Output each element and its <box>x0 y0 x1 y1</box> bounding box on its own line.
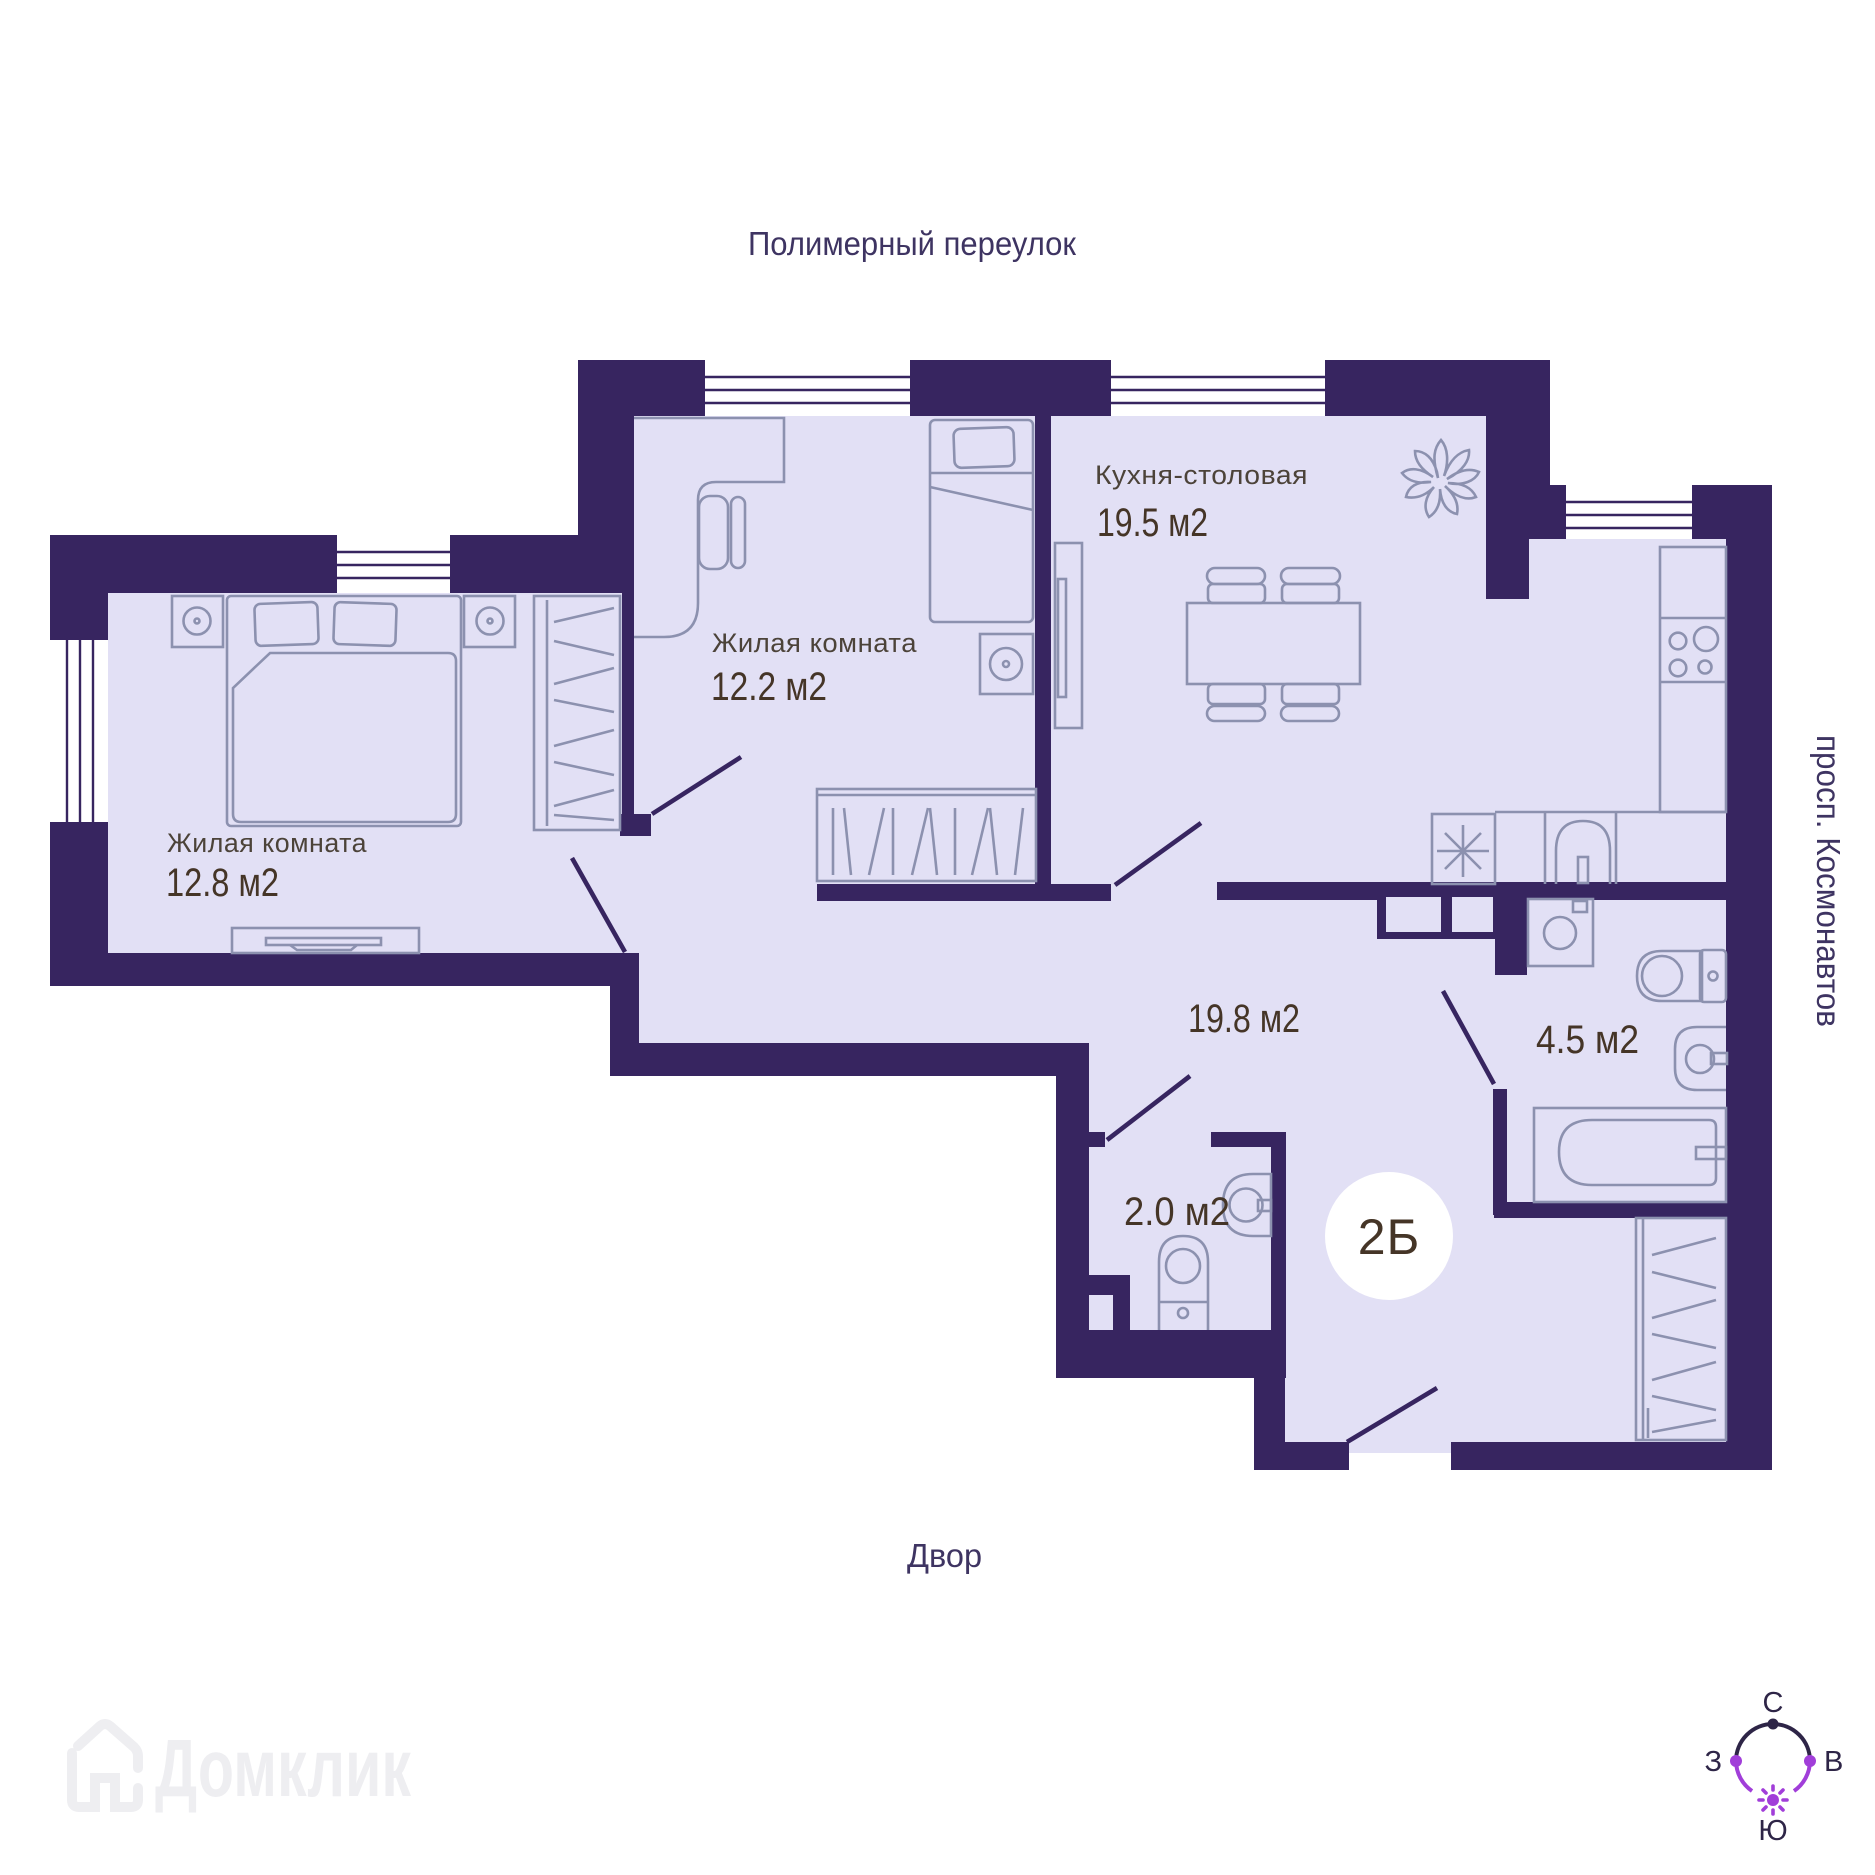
svg-text:просп. Космонавтов: просп. Космонавтов <box>1810 735 1847 1027</box>
svg-text:12.8 м2: 12.8 м2 <box>166 861 279 905</box>
svg-text:19.8 м2: 19.8 м2 <box>1188 997 1300 1041</box>
svg-text:С: С <box>1763 1687 1784 1719</box>
svg-text:Жилая комната: Жилая комната <box>167 828 367 858</box>
svg-text:З: З <box>1704 1746 1722 1778</box>
svg-text:Кухня-столовая: Кухня-столовая <box>1095 460 1308 490</box>
svg-text:4.5 м2: 4.5 м2 <box>1536 1018 1639 1062</box>
svg-text:В: В <box>1824 1746 1843 1778</box>
svg-text:2Б: 2Б <box>1358 1209 1421 1265</box>
svg-text:Жилая комната: Жилая комната <box>712 628 917 658</box>
svg-text:Ю: Ю <box>1758 1815 1787 1847</box>
svg-text:Домклик: Домклик <box>155 1723 412 1814</box>
svg-text:2.0 м2: 2.0 м2 <box>1124 1190 1230 1234</box>
svg-text:19.5 м2: 19.5 м2 <box>1097 501 1208 545</box>
svg-text:Полимерный переулок: Полимерный переулок <box>748 225 1077 262</box>
svg-text:Двор: Двор <box>907 1537 982 1574</box>
svg-text:12.2 м2: 12.2 м2 <box>711 665 827 709</box>
